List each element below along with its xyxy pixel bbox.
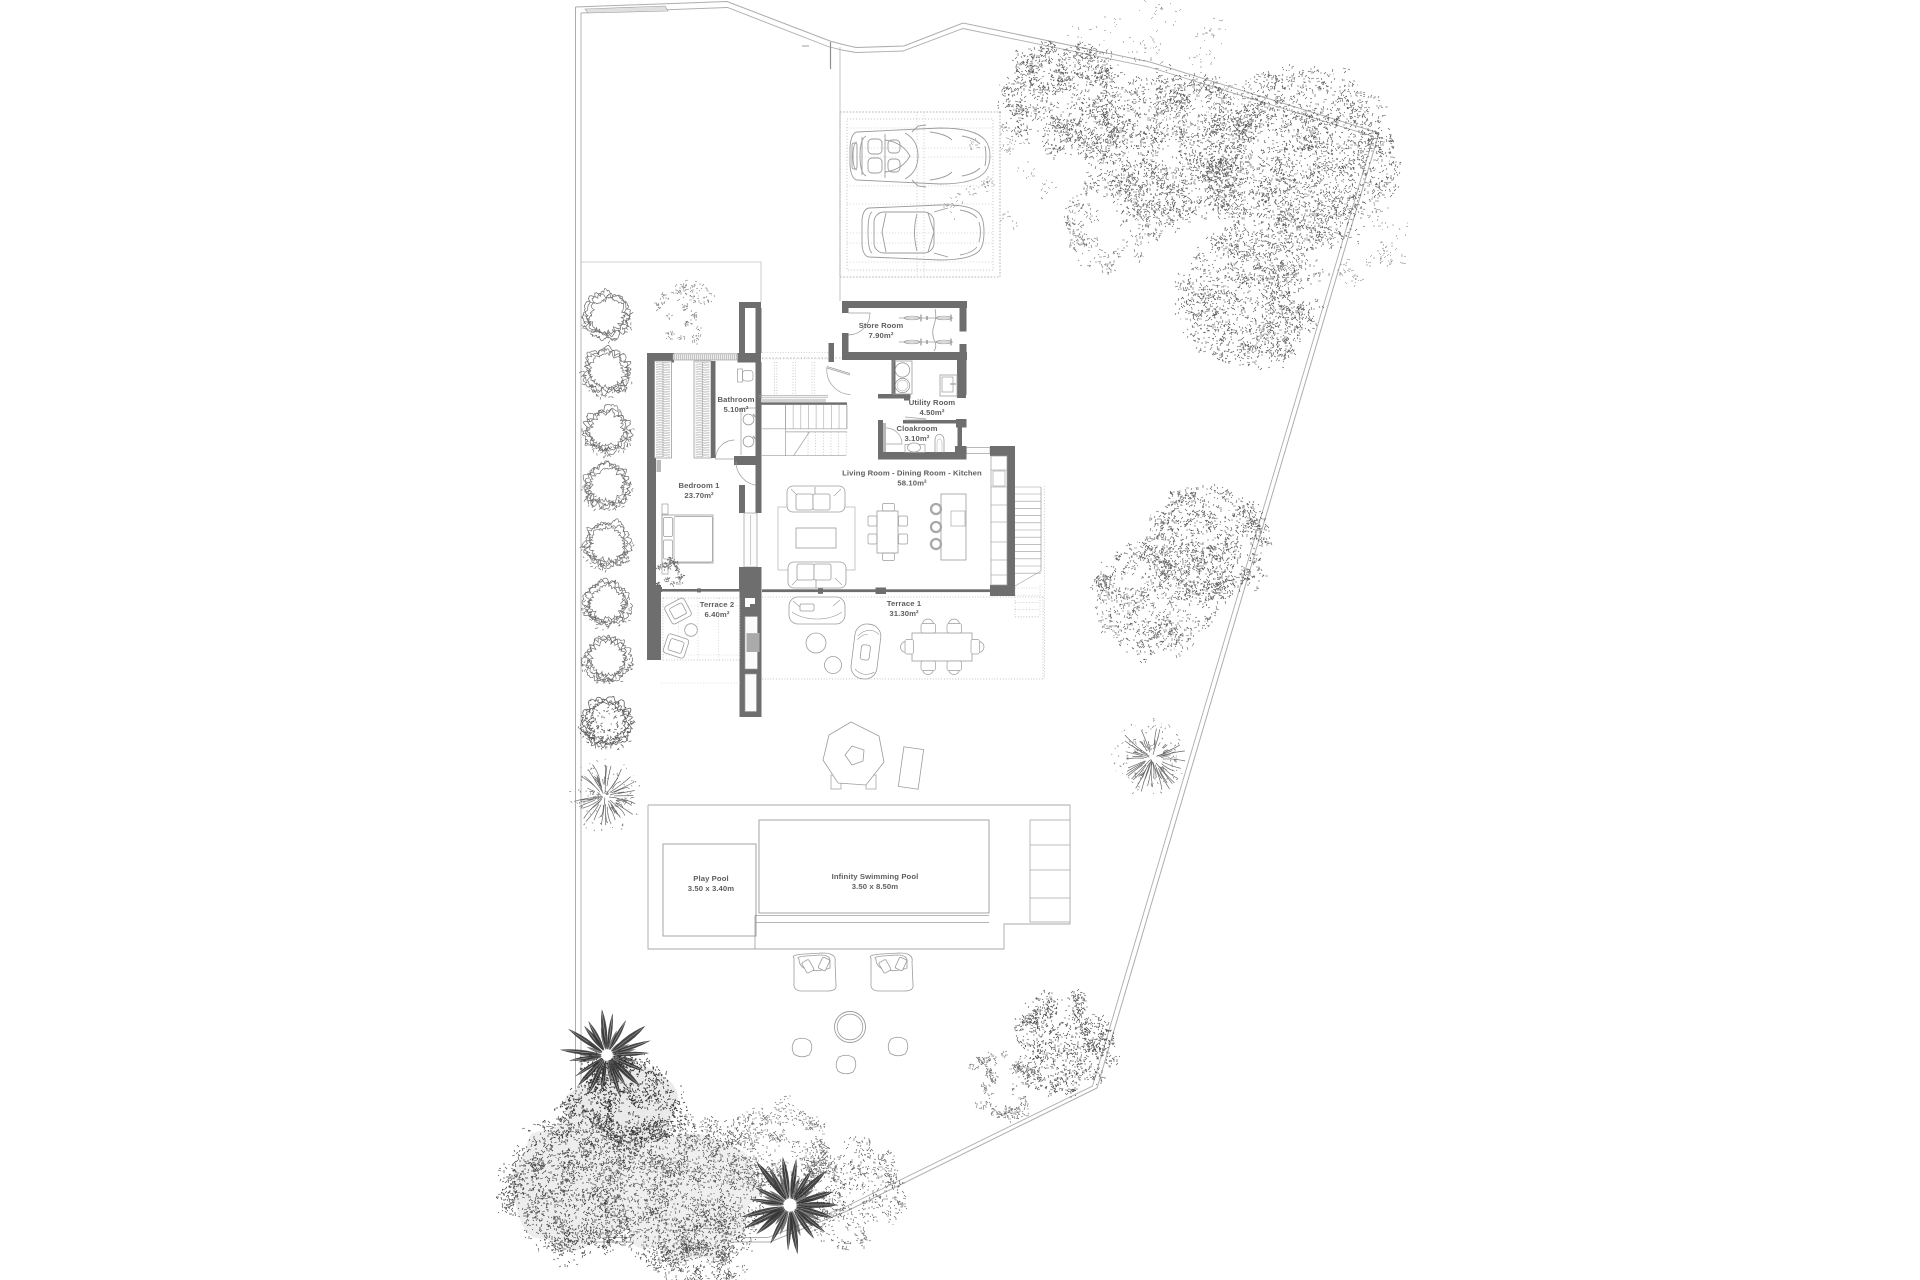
svg-text:5.10m²: 5.10m² [724,405,749,414]
svg-text:Bathroom: Bathroom [717,395,754,404]
svg-text:Bedroom 1: Bedroom 1 [678,481,720,490]
svg-text:Living Room - Dining Room - Ki: Living Room - Dining Room - Kitchen [842,469,982,478]
svg-text:23.70m²: 23.70m² [684,491,714,500]
svg-text:3.50 x 8.50m: 3.50 x 8.50m [852,882,899,891]
svg-text:Store Room: Store Room [859,321,904,330]
svg-text:4.50m²: 4.50m² [920,408,945,417]
svg-text:Utility Room: Utility Room [909,398,956,407]
svg-text:31.30m²: 31.30m² [889,609,919,618]
svg-text:Play Pool: Play Pool [693,874,729,883]
svg-text:7.90m²: 7.90m² [869,331,894,340]
svg-text:Cloakroom: Cloakroom [896,424,937,433]
svg-text:58.10m²: 58.10m² [897,479,927,488]
svg-text:6.40m²: 6.40m² [705,610,730,619]
svg-text:3.10m²: 3.10m² [905,434,930,443]
svg-text:Terrace 1: Terrace 1 [887,599,922,608]
svg-text:3.50 x 3.40m: 3.50 x 3.40m [688,884,735,893]
svg-text:Terrace 2: Terrace 2 [700,600,735,609]
svg-text:Infinity Swimming Pool: Infinity Swimming Pool [832,872,919,881]
